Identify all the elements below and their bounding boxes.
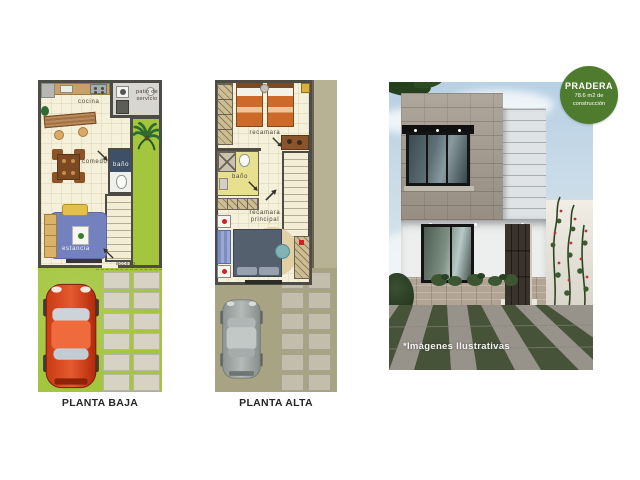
- window-sill: [404, 186, 474, 191]
- window-mullion: [426, 135, 428, 183]
- palm-tree-icon: [133, 122, 161, 160]
- panel-facade: [503, 108, 546, 220]
- shower-icon: [218, 152, 236, 172]
- paver: [281, 313, 304, 330]
- desk-items: [287, 139, 292, 144]
- pillow: [237, 267, 257, 275]
- pradera-badge: PRADERA 78.6 m2 de construcción: [560, 66, 618, 124]
- paver: [133, 354, 160, 371]
- caption-planta-baja: PLANTA BAJA: [38, 397, 162, 409]
- stove-burners: [94, 87, 97, 90]
- closet-master: [294, 236, 310, 279]
- coffee-table: [72, 226, 89, 245]
- front-shrubs: [429, 265, 521, 287]
- nightstand-round: [260, 84, 269, 93]
- driveway: [389, 305, 593, 370]
- floorplan-planta-alta: recamara baño recamara principal: [215, 80, 337, 393]
- table-plant-icon: [78, 233, 84, 239]
- single-bed: [267, 83, 294, 127]
- property-dashed-line: [96, 269, 162, 270]
- badge-title: PRADERA: [565, 81, 613, 91]
- window-mullion: [446, 135, 448, 183]
- toilet-icon: [239, 154, 250, 167]
- lamp-icon: [222, 219, 227, 224]
- paver: [281, 374, 304, 391]
- dresser: [217, 230, 231, 264]
- badge-area-line2: construcción: [573, 101, 606, 109]
- sink-icon: [219, 178, 228, 190]
- paver: [308, 333, 331, 350]
- paver: [103, 333, 130, 350]
- paver: [281, 333, 304, 350]
- fridge-icon: [41, 83, 55, 98]
- closet-bedroom: [217, 83, 233, 145]
- accent-chair: [275, 244, 290, 259]
- tv-console: [66, 259, 102, 263]
- paver: [103, 374, 130, 391]
- desk: [281, 135, 309, 150]
- bar-stool: [54, 130, 64, 140]
- single-bed: [236, 83, 263, 127]
- heater-icon: [116, 100, 129, 114]
- paver: [103, 272, 130, 289]
- plant-icon: [41, 106, 49, 116]
- room-label-patio: patio de servicio: [133, 89, 161, 102]
- arrow-entry-icon: [102, 247, 114, 259]
- badge-area-line1: 78.6 m2 de: [574, 93, 603, 101]
- room-label-acceso: acceso: [116, 261, 135, 268]
- washer-drum: [120, 89, 126, 95]
- paver: [133, 292, 160, 309]
- room-label-bano-uf: baño: [232, 174, 248, 181]
- red-car-top-view: [40, 282, 102, 390]
- paver: [308, 313, 331, 330]
- corner-fixture-icon: [301, 83, 310, 93]
- stairs-uf: [282, 151, 310, 243]
- room-label-estancia: estancia: [62, 246, 90, 253]
- bathroom-gf: [108, 148, 133, 194]
- arrow-bath-icon: [248, 181, 259, 192]
- flyer-canvas: patio de servicio cocina comedor ba: [0, 0, 640, 480]
- bar-stool: [78, 127, 88, 137]
- arrow-to-stairs-icon: [265, 188, 278, 201]
- paver: [103, 313, 130, 330]
- lamp-icon: [222, 269, 227, 274]
- paver: [308, 354, 331, 371]
- nightstand: [217, 215, 231, 228]
- disclaimer-text: *Imágenes Ilustrativas: [403, 341, 510, 352]
- side-garden: [130, 116, 162, 268]
- sofa: [44, 214, 57, 258]
- paver-path: [103, 272, 160, 391]
- room-label-cocina: cocina: [78, 99, 100, 106]
- paver: [103, 292, 130, 309]
- washer-icon: [116, 86, 129, 98]
- paver: [103, 354, 130, 371]
- roof-strip: [312, 80, 337, 268]
- paver: [133, 333, 160, 350]
- table-setting: [62, 159, 66, 163]
- paver: [133, 272, 160, 289]
- caption-planta-alta: PLANTA ALTA: [215, 397, 337, 409]
- paver: [308, 374, 331, 391]
- bedroom-door-bar: [245, 280, 282, 284]
- room-label-bano-gf: baño: [113, 162, 129, 169]
- sink-icon: [60, 85, 73, 93]
- armchair: [62, 204, 88, 216]
- paver: [133, 374, 160, 391]
- service-patio: patio de servicio: [110, 80, 162, 118]
- paver: [281, 292, 304, 309]
- stove-icon: [90, 84, 107, 94]
- gray-car-top-view: [218, 290, 265, 388]
- closet-accent: [299, 240, 304, 245]
- paver: [308, 292, 331, 309]
- nightstand: [217, 265, 231, 278]
- closet-hall: [217, 198, 259, 210]
- house-render-photo: *Imágenes Ilustrativas: [389, 82, 593, 370]
- climbing-roses: [546, 185, 593, 313]
- upper-window: [406, 132, 470, 186]
- arrow-to-desk-icon: [272, 137, 283, 148]
- paver: [133, 313, 160, 330]
- paver: [281, 354, 304, 371]
- toilet-icon: [116, 175, 127, 189]
- room-label-recamara-principal: recamara principal: [242, 210, 288, 224]
- pillow: [259, 267, 279, 275]
- paver-path-faded: [281, 272, 331, 391]
- floorplan-planta-baja: patio de servicio cocina comedor ba: [38, 80, 162, 393]
- dining-table: [57, 154, 80, 180]
